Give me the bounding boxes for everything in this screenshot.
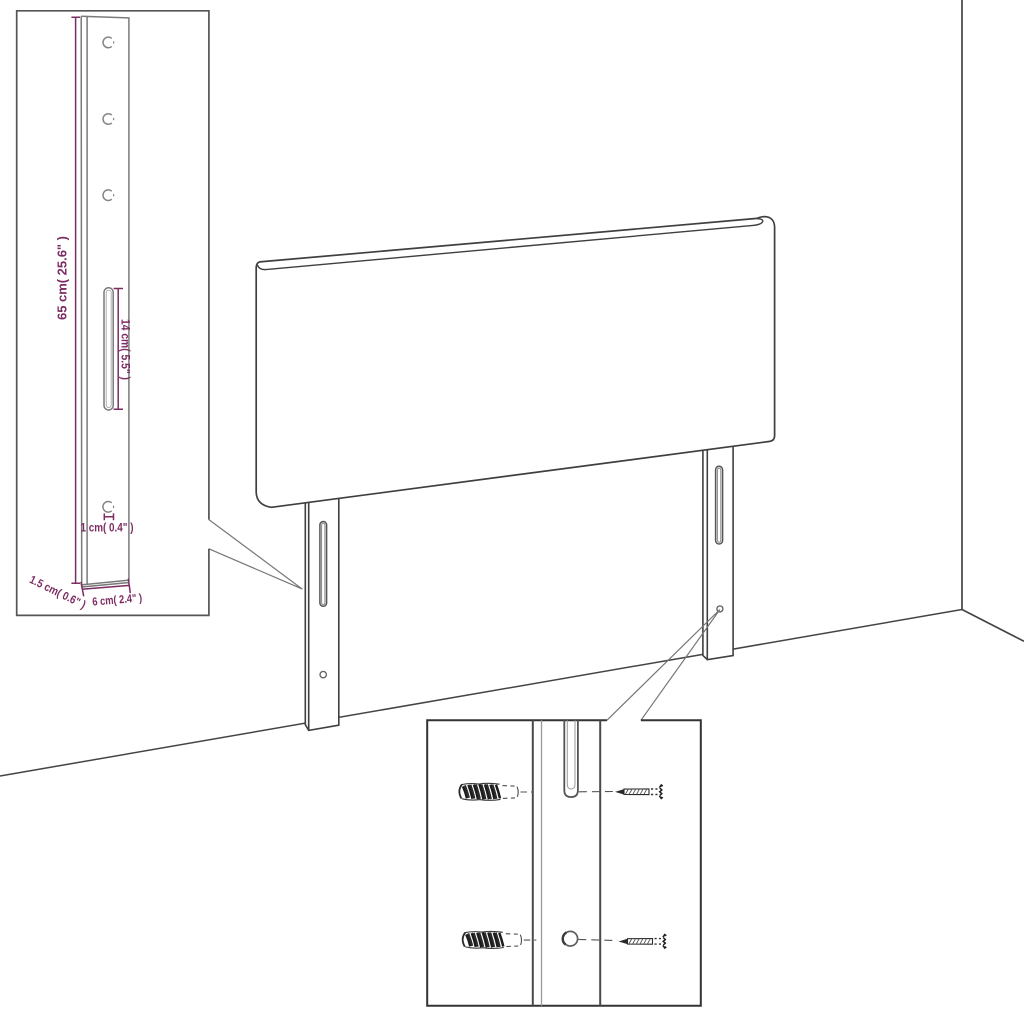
svg-text:14 cm( 5.5" ): 14 cm( 5.5" ) bbox=[119, 319, 131, 380]
svg-text:65 cm( 25.6" ): 65 cm( 25.6" ) bbox=[55, 236, 69, 320]
svg-text:1 cm( 0.4" ): 1 cm( 0.4" ) bbox=[81, 523, 134, 535]
